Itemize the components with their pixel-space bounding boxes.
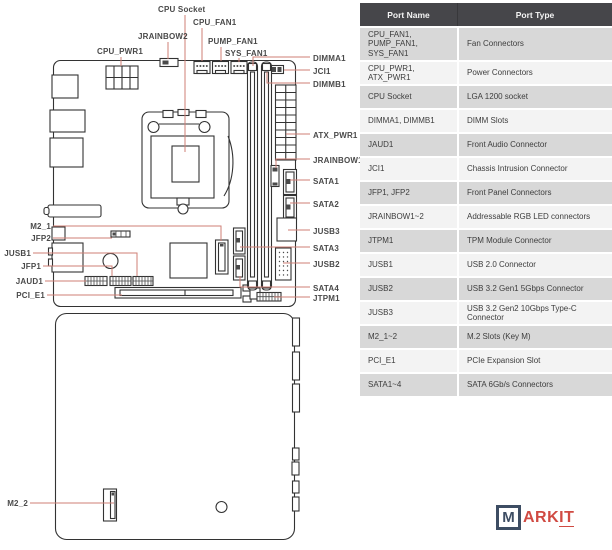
port-name-cell: JFP1, JFP2: [360, 182, 457, 204]
label-sys-fan1: SYS_FAN1: [225, 49, 268, 58]
table-row: CPU_FAN1, PUMP_FAN1, SYS_FAN1Fan Connect…: [360, 28, 612, 60]
sata1-connector: [284, 170, 297, 195]
label-jfp1: JFP1: [21, 262, 41, 271]
table-row: JUSB1USB 2.0 Connector: [360, 254, 612, 276]
jfp1-header: [110, 277, 131, 286]
sata2-connector: [284, 196, 297, 220]
label-dimma1: DIMMA1: [313, 54, 346, 63]
port-type-cell: LGA 1200 socket: [459, 86, 612, 108]
port-type-cell: Addressable RGB LED connectors: [459, 206, 612, 228]
fan-headers: [194, 62, 247, 74]
logo-text: ARKIT: [523, 509, 574, 527]
table-row: JCI1Chassis Intrusion Connector: [360, 158, 612, 180]
port-table-body: CPU_FAN1, PUMP_FAN1, SYS_FAN1Fan Connect…: [360, 28, 612, 396]
table-row: PCI_E1PCIe Expansion Slot: [360, 350, 612, 372]
table-row: CPU SocketLGA 1200 socket: [360, 86, 612, 108]
port-name-cell: M2_1~2: [360, 326, 457, 348]
label-m2-2: M2_2: [7, 499, 28, 508]
port-name-cell: DIMMA1, DIMMB1: [360, 110, 457, 132]
jusb2-connector: [276, 248, 292, 280]
bottom-board-outline: [56, 314, 300, 540]
logo-m-box: M: [496, 505, 521, 530]
jrainbow1-header: [271, 166, 279, 187]
port-name-cell: PCI_E1: [360, 350, 457, 372]
port-type-cell: PCIe Expansion Slot: [459, 350, 612, 372]
table-row: M2_1~2M.2 Slots (Key M): [360, 326, 612, 348]
port-type-cell: USB 2.0 Connector: [459, 254, 612, 276]
table-row: DIMMA1, DIMMB1DIMM Slots: [360, 110, 612, 132]
label-jusb2: JUSB2: [313, 260, 340, 269]
port-type-header: Port Type: [458, 3, 612, 26]
table-row: CPU_PWR1, ATX_PWR1Power Connectors: [360, 62, 612, 84]
label-atx-pwr1: ATX_PWR1: [313, 131, 358, 140]
label-dimmb1: DIMMB1: [313, 80, 346, 89]
page: { "diagram": { "labels": { "cpu_socket":…: [0, 0, 612, 550]
jusb1-header: [133, 277, 153, 286]
port-name-cell: JUSB1: [360, 254, 457, 276]
label-cpu-fan1: CPU_FAN1: [193, 18, 237, 27]
jfp2-header: [111, 231, 130, 237]
label-cpu-socket: CPU Socket: [158, 5, 205, 14]
label-jusb3: JUSB3: [313, 227, 340, 236]
table-row: JUSB2USB 3.2 Gen1 5Gbps Connector: [360, 278, 612, 300]
port-name-cell: CPU_PWR1, ATX_PWR1: [360, 62, 457, 84]
label-jusb1: JUSB1: [4, 249, 31, 258]
port-type-cell: Chassis Intrusion Connector: [459, 158, 612, 180]
label-sata3: SATA3: [313, 244, 339, 253]
port-name-header: Port Name: [360, 3, 457, 26]
port-name-cell: SATA1~4: [360, 374, 457, 396]
port-type-cell: Front Audio Connector: [459, 134, 612, 156]
port-name-cell: JCI1: [360, 158, 457, 180]
label-cpu-pwr1: CPU_PWR1: [97, 47, 143, 56]
port-type-cell: Front Panel Connectors: [459, 182, 612, 204]
label-pci-e1: PCI_E1: [16, 291, 45, 300]
cpu-pwr1-connector: [106, 66, 138, 89]
port-type-cell: DIMM Slots: [459, 110, 612, 132]
label-jtpm1: JTPM1: [313, 294, 340, 303]
port-type-cell: Power Connectors: [459, 62, 612, 84]
label-jrainbow2: JRAINBOW2: [138, 32, 188, 41]
table-row: JRAINBOW1~2Addressable RGB LED connector…: [360, 206, 612, 228]
port-name-cell: JUSB2: [360, 278, 457, 300]
cpu-socket-shape: [142, 110, 233, 215]
port-name-cell: JTPM1: [360, 230, 457, 252]
port-table: Port Name Port Type CPU_FAN1, PUMP_FAN1,…: [360, 0, 612, 396]
label-jci1: JCI1: [313, 67, 331, 76]
port-type-cell: TPM Module Connector: [459, 230, 612, 252]
port-type-cell: USB 3.2 Gen2 10Gbps Type-C Connector: [459, 302, 612, 324]
port-type-cell: Fan Connectors: [459, 28, 612, 60]
label-jfp2: JFP2: [31, 234, 51, 243]
port-name-cell: JRAINBOW1~2: [360, 206, 457, 228]
jrainbow2-header: [160, 59, 178, 67]
port-type-cell: USB 3.2 Gen1 5Gbps Connector: [459, 278, 612, 300]
atx-pwr1-connector: [276, 85, 297, 160]
label-pump-fan1: PUMP_FAN1: [208, 37, 258, 46]
label-jrainbow1: JRAINBOW1: [313, 156, 360, 165]
sata3-connector: [234, 228, 246, 254]
port-name-cell: JAUD1: [360, 134, 457, 156]
port-type-cell: M.2 Slots (Key M): [459, 326, 612, 348]
jaud1-header: [85, 277, 107, 286]
m2-2-slot: [104, 489, 117, 521]
port-name-cell: JUSB3: [360, 302, 457, 324]
label-sata2: SATA2: [313, 200, 339, 209]
table-row: JFP1, JFP2Front Panel Connectors: [360, 182, 612, 204]
markit-logo: M ARKIT: [496, 505, 574, 530]
port-type-cell: SATA 6Gb/s Connectors: [459, 374, 612, 396]
port-table-header: Port Name Port Type: [360, 3, 612, 26]
table-row: JUSB3USB 3.2 Gen2 10Gbps Type-C Connecto…: [360, 302, 612, 324]
label-sata1: SATA1: [313, 177, 339, 186]
label-m2-1: M2_1: [30, 222, 51, 231]
chipset-shape: [170, 243, 207, 278]
motherboard-diagram: CPU Socket CPU_FAN1 JRAINBOW2 PUMP_FAN1 …: [0, 0, 360, 550]
port-name-cell: CPU_FAN1, PUMP_FAN1, SYS_FAN1: [360, 28, 457, 60]
label-sata4: SATA4: [313, 284, 339, 293]
label-jaud1: JAUD1: [16, 277, 44, 286]
sata4-connector: [234, 256, 246, 280]
jci1-header: [271, 66, 284, 74]
m2-1-slot: [216, 240, 229, 274]
table-row: JTPM1TPM Module Connector: [360, 230, 612, 252]
table-row: JAUD1Front Audio Connector: [360, 134, 612, 156]
port-name-cell: CPU Socket: [360, 86, 457, 108]
table-row: SATA1~4SATA 6Gb/s Connectors: [360, 374, 612, 396]
